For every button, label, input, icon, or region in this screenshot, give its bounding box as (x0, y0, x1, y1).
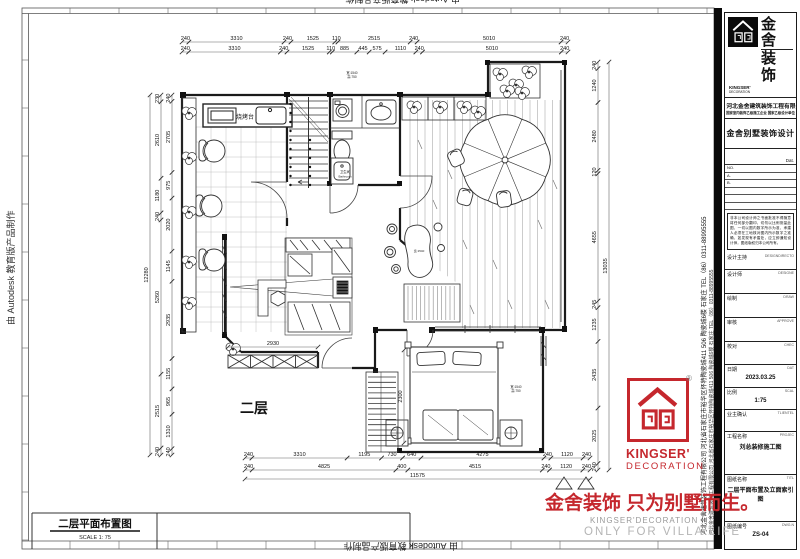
dimension-label: 2025 (592, 430, 598, 442)
dimension-label: 1180 (155, 190, 161, 202)
blank-line (725, 203, 796, 211)
field-label-en: DRAW (783, 295, 794, 302)
dimension-label: 1145 (166, 260, 172, 272)
title-block-row: 工程名称PROJEC刘总装修施工图 (725, 432, 796, 475)
brand-en-2: DECORATION (725, 90, 796, 98)
dimension-label: 4515 (469, 464, 481, 470)
patio-umbrella (446, 115, 550, 208)
dimension-chain: 2302610118024052602515240 (155, 93, 163, 457)
field-label-en: DESIGNDIRECTO (765, 254, 794, 261)
dimension-label: 120 (592, 167, 598, 176)
dimension-label: 4275 (476, 452, 488, 458)
dimension-label: 1120 (561, 452, 573, 458)
field-label-en: APPROVE (777, 319, 794, 326)
autodesk-credit-bottom: 由 Autodesk 教育版产品制作 (318, 540, 458, 553)
field-label: 校对 (727, 343, 737, 350)
dimension-chain: 2403310119573064042752401120240 (243, 452, 592, 460)
field-label-en: TITL (787, 476, 794, 483)
plant-icon (433, 101, 448, 114)
dimension-label: 240 (279, 46, 288, 52)
dimension-label: 13035 (603, 258, 609, 273)
dimension-label: 240 (592, 462, 598, 471)
dimension-chain: 12280 (144, 93, 152, 457)
dimension-label: 240 (244, 464, 253, 470)
title-block-row: 日期DAT2023.03.25 (725, 365, 796, 388)
drawing-scale: SCALE 1: 75 (79, 535, 111, 541)
copyright-notice: 非本公司设计师之书面批准不得随意将任何部分翻印，切勿以比例测量此图，一切以图内数… (727, 213, 794, 250)
dimension-label: 965 (166, 397, 172, 406)
plant-icon (182, 107, 197, 120)
dimension-label: 885 (340, 46, 349, 52)
dimension-label: 240 (543, 452, 552, 458)
svg-text:宽:1540: 宽:1540 (414, 248, 425, 253)
svg-text:卫生间: 卫生间 (340, 169, 351, 174)
dimension-label: 2930 (267, 341, 279, 347)
dimension-label: 1235 (592, 318, 598, 330)
dimension-label: 2435 (592, 369, 598, 381)
field-label-en: DESIGNE (778, 271, 794, 278)
dimension-label: 3310 (230, 36, 242, 42)
dimension-chain: 240124024801204655245123524352025240 (592, 60, 600, 472)
dimension-label: 1310 (166, 425, 172, 437)
dimension-label: 3310 (293, 452, 305, 458)
dimension-chain: 11575 (243, 473, 592, 481)
dimension-label: 240 (166, 447, 172, 456)
floor-plan-svg: 二层平面布置图 SCALE 1: 75 (0, 0, 800, 559)
title-block-row: 绘制DRAW (725, 294, 796, 318)
dimension-label: 12280 (144, 267, 150, 282)
plant-icon (493, 68, 508, 81)
dimension-label: 240 (415, 46, 424, 52)
title-block-header: 金舍 装饰 (725, 13, 796, 85)
plant-icon (182, 256, 197, 269)
brand-slogan-en-2: ONLY FOR VILLA LIFE (584, 526, 741, 538)
kingser-logo-icon (728, 17, 758, 47)
dimension-label: 2610 (155, 134, 161, 146)
plant-icon (182, 206, 197, 219)
no-line: NO. (725, 165, 796, 173)
plant-icon (522, 66, 537, 79)
plant-icon (407, 101, 422, 114)
field-label: 设计师 (727, 271, 742, 278)
plant-icon (182, 152, 197, 165)
autodesk-credit-top: 由 Autodesk 教育版产品制作 (320, 0, 460, 6)
patio-chair-icon (496, 190, 512, 208)
field-label-en: CHEC (784, 343, 794, 350)
plant-icon (500, 85, 515, 98)
registered-mark: ® (686, 374, 692, 383)
dimension-chain: 2403310240152511025152405010240 (180, 36, 570, 44)
blank-line (725, 195, 796, 203)
bedroom (386, 342, 522, 446)
sheet-frame (22, 8, 714, 549)
media-room (230, 238, 352, 335)
dimension-label: 240 (283, 36, 292, 42)
field-label: 工程名称 (727, 433, 747, 440)
patio-chair-icon (456, 187, 474, 206)
dimension-chain: 13035 (603, 60, 611, 472)
dimension-label: 4655 (592, 231, 598, 243)
brand-slogan-en-1: KINGSER'DECORATION (590, 516, 698, 525)
dimension-label: 240 (155, 447, 161, 456)
field-label-en: PROJEC (780, 433, 794, 440)
dimension-chain: 2403310240152511088544557511102405010240 (180, 46, 570, 54)
field-label: 比例 (727, 389, 737, 396)
field-label: 图纸名称 (727, 476, 747, 483)
dimension-label: 400 (397, 464, 406, 470)
svg-text:高:750: 高:750 (347, 74, 357, 79)
dimension-label: 240 (592, 61, 598, 70)
autodesk-credit-left: 由 Autodesk 教育版产品制作 (4, 140, 17, 325)
svg-text:高:750: 高:750 (511, 388, 521, 393)
dimension-label: 240 (155, 212, 161, 221)
dimension-label: 1240 (592, 79, 598, 91)
dimension-label: 2515 (155, 405, 161, 417)
b-line: B. (725, 180, 796, 188)
field-label: 日期 (727, 366, 737, 373)
company-strip-2: 河北金舍建筑装饰工程有限公司 河北省石家庄市裕华区怀特陶瓷城411 506 陶瓷… (708, 15, 715, 535)
dimension-label: 110 (332, 36, 341, 42)
kingser-red-logo-icon (627, 378, 689, 442)
svg-text:Bathroom: Bathroom (338, 175, 352, 179)
dimension-label: 240 (560, 46, 569, 52)
title-block-row: 设计主持DESIGNDIRECTO (725, 253, 796, 270)
dimension-label: 3310 (228, 46, 240, 52)
dimension-label: 240 (166, 94, 172, 103)
plant-icon (226, 343, 241, 356)
bbq-counter-label: 烧烤台 (236, 113, 254, 121)
title-block-row: 业主确认TLIENTEL (725, 410, 796, 432)
title-block: 金舍 装饰 KINGSER' DECORATION 河北金舍建筑装饰工程有限公司… (724, 12, 797, 550)
dimension-label: 5010 (483, 36, 495, 42)
title-block-row: 设计师DESIGNE (725, 270, 796, 294)
dimension-label: 240 (181, 46, 190, 52)
field-label-en: DWG.N (782, 523, 794, 530)
drawing-sheet: 二层平面布置图 SCALE 1: 75 (0, 0, 800, 559)
dimension-label: 2480 (592, 130, 598, 142)
blank-line (725, 188, 796, 196)
desk-chair-icon (271, 291, 285, 306)
title-block-row: 审核APPROVE (725, 318, 796, 342)
dimension-label: 240 (582, 452, 591, 458)
dimension-label: 1120 (560, 464, 572, 470)
drawing-title: 二层平面布置图 (58, 517, 132, 530)
dimension-label: 240 (541, 464, 550, 470)
title-block-row: 比例SCAL1:75 (725, 388, 796, 410)
toilet-icon (332, 131, 352, 139)
brand-name-2: 装饰 (761, 50, 793, 84)
dimension-label: 730 (387, 452, 396, 458)
dimension-chain: 240482540045152401120240 (243, 464, 592, 472)
field-label: 审核 (727, 319, 737, 326)
title-block-row: 校对CHEC (725, 342, 796, 365)
dimension-label: 240 (244, 452, 253, 458)
dimension-chain: 240270597520201145293511559651310240 (166, 93, 174, 457)
field-value: 1:75 (725, 398, 796, 404)
dimension-label: 1155 (166, 368, 172, 380)
dimension-label: 5260 (155, 291, 161, 303)
dimension-label: 2515 (368, 36, 380, 42)
product-title: 金舍别墅装饰设计 (725, 128, 796, 149)
red-brand-en-2: DECORATION (626, 461, 705, 472)
plant-icon (457, 101, 472, 114)
field-label: 绘制 (727, 295, 737, 302)
dimension-label: 240 (582, 464, 591, 470)
field-label-en: TLIENTEL (778, 411, 794, 418)
field-value: 2023.03.25 (725, 375, 796, 381)
field-label: 业主确认 (727, 411, 747, 418)
dimension-label: 445 (358, 46, 367, 52)
dimension-label: 245 (592, 300, 598, 309)
dimension-label: 2020 (166, 219, 172, 231)
bbq-counter: 烧烤台 (203, 104, 292, 127)
brand-name-1: 金舍 (761, 17, 793, 50)
date-label: Dat. (725, 157, 796, 165)
dimension-label: 11575 (410, 473, 425, 479)
a-line: A. (725, 173, 796, 181)
floor-label: 二层 (240, 400, 268, 416)
field-value: 刘总装修施工图 (725, 442, 796, 451)
dimension-label: 5010 (486, 46, 498, 52)
plant-icon (471, 106, 486, 119)
dimension-label: 975 (166, 181, 172, 190)
field-label-en: DAT (787, 366, 794, 373)
company-name: 河北金舍建筑装饰工程有限公司 (726, 101, 794, 110)
dimension-label: 1525 (307, 36, 319, 42)
red-brand-en-1: KINGSER' (626, 447, 690, 461)
dimension-label: 1195 (358, 452, 370, 458)
dimension-label: 240 (560, 36, 569, 42)
dimension-label: 110 (326, 46, 335, 52)
dimension-label: 640 (407, 452, 416, 458)
dimension-label: 230 (155, 94, 161, 103)
staircase (289, 97, 330, 188)
company-qualification: 国家室内装饰乙级施工企业 国家乙级设计单位 (725, 110, 796, 119)
company-strip-1: 河北金舍建筑装饰工程有限公司 河北省石家庄市裕华区怀特陶瓷城411 506 陶瓷… (699, 15, 708, 535)
number-lines: NO. A. B. (725, 165, 796, 210)
dimension-label: 240 (181, 36, 190, 42)
dimension-label: 2935 (166, 314, 172, 326)
field-label-en: SCAL (785, 389, 794, 396)
sheet-divider-bar (714, 8, 722, 549)
dimension-label: 240 (409, 36, 418, 42)
dimension-label: 575 (373, 46, 382, 52)
field-label: 设计主持 (727, 254, 747, 261)
tea-chairs (196, 140, 225, 271)
dimension-label: 1110 (395, 46, 406, 52)
brand-slogan: 金舍装饰 只为别墅而生。 (545, 488, 759, 515)
dimension-label: 4825 (318, 464, 330, 470)
dimension-label: 2705 (166, 131, 172, 143)
plant-icon (182, 297, 197, 310)
dimension-label: 2300 (398, 390, 404, 402)
balcony-railing (228, 355, 318, 368)
dimension-label: 1525 (302, 46, 314, 52)
